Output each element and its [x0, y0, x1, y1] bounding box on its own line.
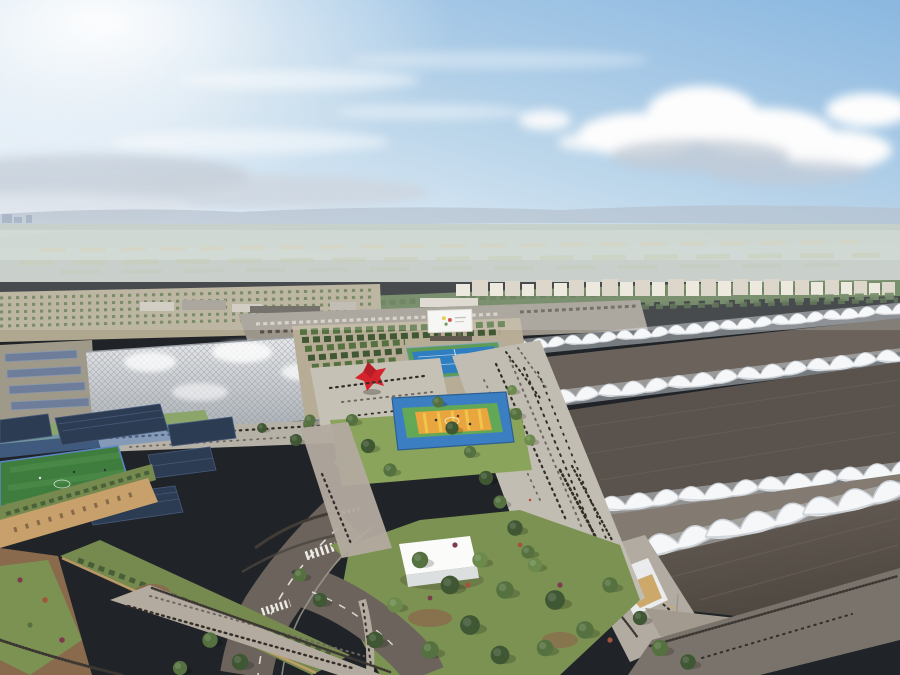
basketball-court	[392, 392, 514, 450]
dirt-patch	[408, 609, 452, 627]
sun-haze	[0, 0, 420, 330]
rendering-canvas	[0, 0, 900, 675]
rendering-viewport	[0, 0, 900, 675]
